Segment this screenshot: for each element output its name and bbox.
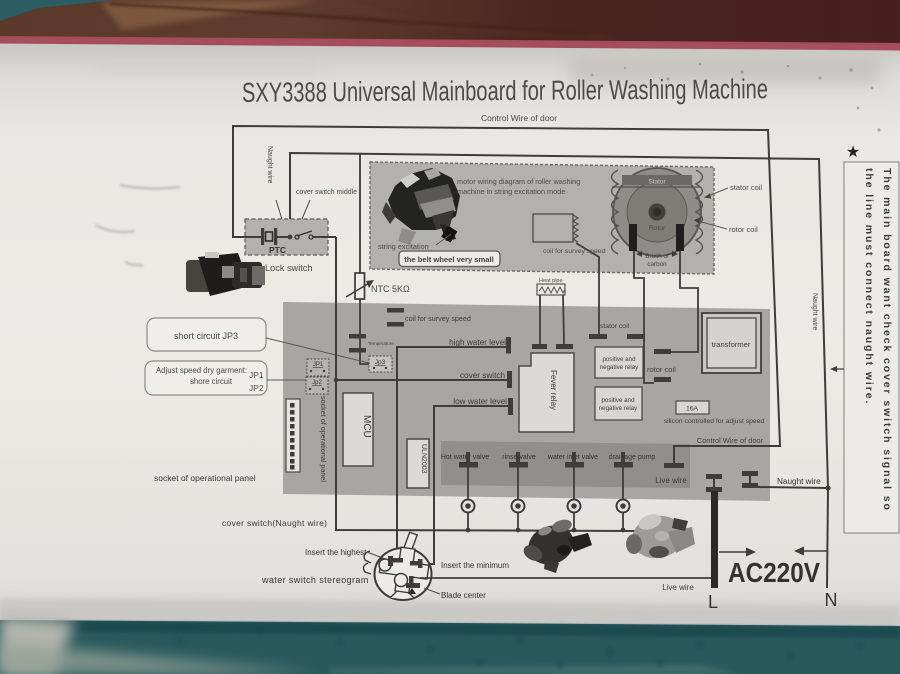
svg-text:transformer: transformer — [712, 340, 751, 349]
svg-text:Naught wire: Naught wire — [811, 293, 818, 330]
svg-text:short circuit JP3: short circuit JP3 — [174, 331, 238, 341]
svg-text:JP1: JP1 — [313, 362, 324, 368]
svg-text:ULN2003: ULN2003 — [420, 444, 427, 474]
svg-text:positive and: positive and — [602, 356, 636, 363]
svg-text:Heat pipe: Heat pipe — [539, 278, 563, 284]
svg-text:Jp3: Jp3 — [375, 359, 386, 366]
svg-text:Control Wire of door: Control Wire of door — [481, 113, 557, 123]
svg-text:low water level: low water level — [453, 397, 507, 406]
svg-text:Rotor: Rotor — [649, 225, 666, 232]
svg-text:Lock switch: Lock switch — [265, 263, 313, 273]
svg-text:PTC: PTC — [269, 245, 286, 255]
svg-text:Live wire: Live wire — [655, 476, 687, 485]
svg-text:rotor coil: rotor coil — [647, 365, 676, 374]
svg-text:coil for survey speed: coil for survey speed — [405, 314, 471, 323]
svg-text:machine in string excitation m: machine in string excitation mode — [457, 187, 565, 196]
svg-text:string excitation: string excitation — [378, 242, 429, 251]
svg-text:rotor coil: rotor coil — [729, 225, 758, 234]
svg-text:negative relay: negative relay — [600, 364, 639, 371]
svg-text:socket of operational panel: socket of operational panel — [154, 473, 256, 483]
svg-text:NTC 5KΩ: NTC 5KΩ — [371, 284, 410, 294]
svg-text:cover switch: cover switch — [460, 371, 505, 380]
svg-text:Temperature: Temperature — [368, 341, 394, 346]
svg-text:Hot water valve: Hot water valve — [441, 454, 489, 461]
svg-text:Control Wire of door: Control Wire of door — [697, 436, 764, 445]
svg-text:Blade center: Blade center — [441, 591, 486, 600]
svg-text:Brush of: Brush of — [645, 253, 669, 260]
svg-text:JP2: JP2 — [249, 383, 264, 393]
svg-text:coil for survey speed: coil for survey speed — [543, 248, 606, 255]
svg-text:Fever relay: Fever relay — [549, 370, 558, 410]
svg-text:Jp2: Jp2 — [312, 380, 322, 386]
svg-text:silicon controlled for adjust: silicon controlled for adjust speed — [664, 418, 765, 425]
svg-text:JP1: JP1 — [249, 370, 264, 380]
svg-text:the line must connect naught w: the line must connect naught wire. — [863, 168, 875, 405]
svg-text:★: ★ — [846, 144, 860, 161]
svg-text:Insert the minimum: Insert the minimum — [441, 561, 509, 570]
svg-text:MCU: MCU — [361, 415, 372, 438]
svg-text:16A: 16A — [686, 406, 699, 413]
svg-text:Stator: Stator — [648, 179, 666, 186]
svg-text:socket of operational panel: socket of operational panel — [319, 396, 328, 482]
svg-text:Insert the highest: Insert the highest — [305, 548, 367, 557]
svg-text:drainage pump: drainage pump — [609, 454, 656, 461]
svg-text:Live wire: Live wire — [662, 583, 694, 592]
svg-text:SXY3388 Universal Mainboard fo: SXY3388 Universal Mainboard for Roller W… — [242, 73, 768, 108]
svg-text:Naught wire: Naught wire — [266, 146, 273, 183]
svg-text:shore circuit: shore circuit — [190, 377, 233, 386]
svg-text:carbon: carbon — [647, 261, 667, 268]
svg-text:AC220V: AC220V — [728, 557, 820, 588]
svg-text:The main board want check cove: The main board want check cover switch s… — [881, 168, 893, 512]
svg-text:the belt wheel very small: the belt wheel very small — [404, 255, 493, 264]
svg-text:L: L — [708, 592, 718, 612]
svg-text:water switch stereogram: water switch stereogram — [261, 575, 369, 585]
svg-text:cover switch middle: cover switch middle — [296, 189, 357, 196]
svg-text:stator coil: stator coil — [730, 183, 762, 192]
svg-text:motor wiring diagram of roller: motor wiring diagram of roller washing — [457, 177, 580, 186]
svg-text:positive and: positive and — [601, 397, 635, 404]
svg-text:Naught wire: Naught wire — [777, 477, 821, 486]
svg-text:stator coil: stator coil — [600, 323, 630, 330]
svg-text:cover switch(Naught wire): cover switch(Naught wire) — [222, 518, 327, 528]
svg-text:negative relay: negative relay — [599, 405, 638, 412]
svg-text:N: N — [825, 590, 838, 610]
svg-text:high water level: high water level — [449, 338, 506, 347]
svg-text:Adjust speed dry garment:: Adjust speed dry garment: — [156, 366, 247, 375]
